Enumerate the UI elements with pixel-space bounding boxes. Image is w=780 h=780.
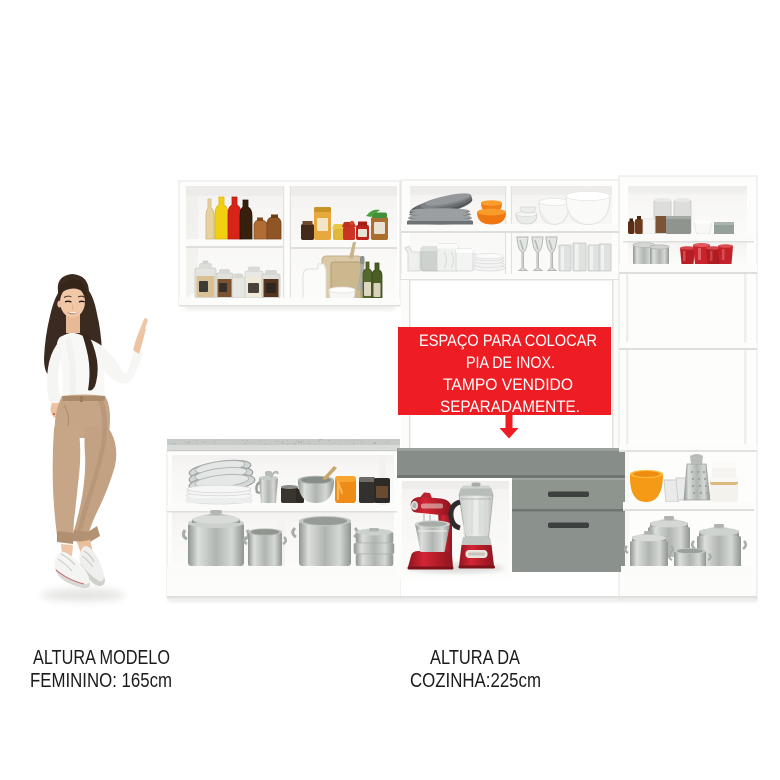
svg-text:TAMPO VENDIDO: TAMPO VENDIDO xyxy=(443,375,573,394)
svg-text:COZINHA:225cm: COZINHA:225cm xyxy=(410,670,541,692)
svg-text:ALTURA DA: ALTURA DA xyxy=(430,647,521,669)
svg-text:ESPAÇO PARA COLOCAR: ESPAÇO PARA COLOCAR xyxy=(419,331,597,350)
svg-text:FEMININO: 165cm: FEMININO: 165cm xyxy=(30,670,172,692)
svg-text:PIA DE INOX.: PIA DE INOX. xyxy=(466,353,555,372)
svg-text:SEPARADAMENTE.: SEPARADAMENTE. xyxy=(440,397,580,416)
svg-text:ALTURA MODELO: ALTURA MODELO xyxy=(33,647,170,669)
